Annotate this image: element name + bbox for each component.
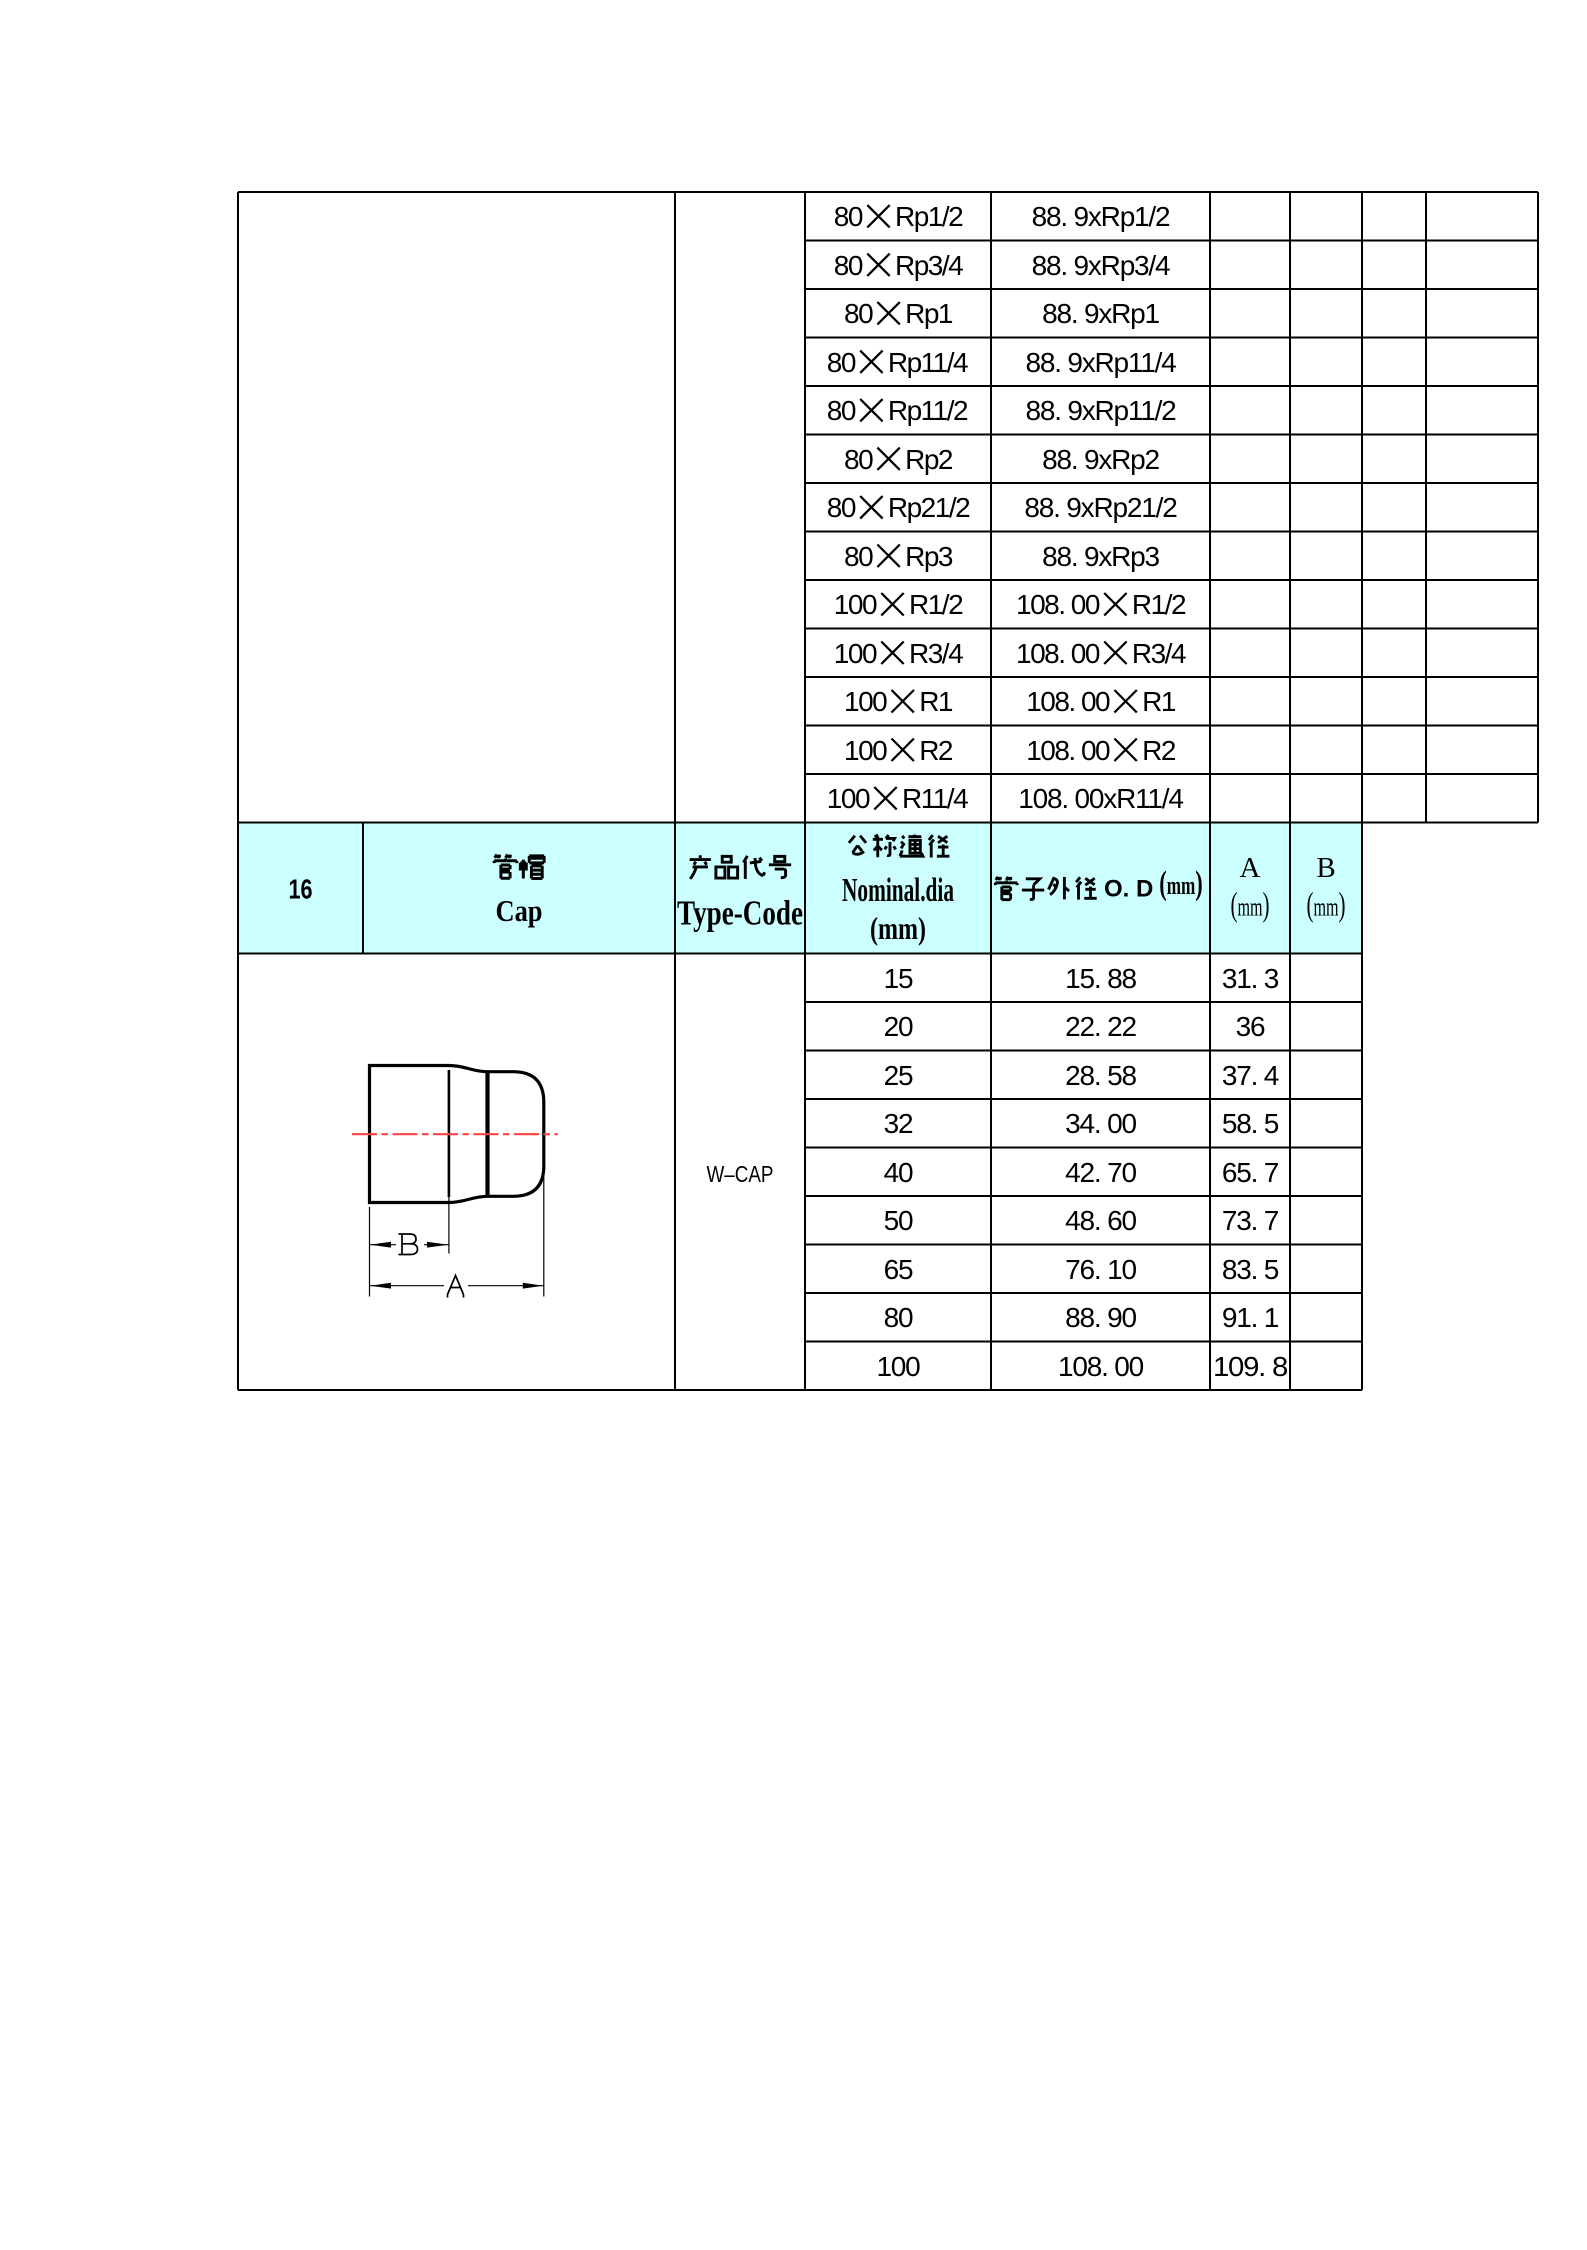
svg-text:100: 100 <box>834 638 877 669</box>
svg-text:91. 1: 91. 1 <box>1222 1302 1279 1333</box>
svg-text:80: 80 <box>844 444 873 475</box>
svg-text:15: 15 <box>884 963 913 994</box>
svg-text:31. 3: 31. 3 <box>1222 963 1279 994</box>
svg-text:(mm): (mm) <box>870 910 926 946</box>
svg-text:65: 65 <box>884 1254 913 1285</box>
svg-text:W–CAP: W–CAP <box>707 1161 774 1187</box>
svg-text:(mm): (mm) <box>1306 887 1345 924</box>
svg-text:R1/2: R1/2 <box>909 589 963 620</box>
svg-text:28. 58: 28. 58 <box>1065 1060 1136 1091</box>
svg-text:Type-Code: Type-Code <box>677 894 803 933</box>
svg-text:36: 36 <box>1236 1011 1265 1042</box>
svg-text:108. 00: 108. 00 <box>1026 686 1110 717</box>
svg-text:B: B <box>1316 852 1335 884</box>
svg-text:Rp3: Rp3 <box>905 541 953 572</box>
svg-text:80: 80 <box>834 201 863 232</box>
svg-text:(mm): (mm) <box>1230 887 1269 924</box>
svg-text:80: 80 <box>884 1302 913 1333</box>
svg-text:Rp1/2: Rp1/2 <box>895 201 963 232</box>
svg-text:50: 50 <box>884 1205 913 1236</box>
svg-text:R1/2: R1/2 <box>1132 589 1186 620</box>
svg-text:73. 7: 73. 7 <box>1222 1205 1279 1236</box>
svg-text:108. 00: 108. 00 <box>1016 589 1100 620</box>
svg-text:Rp3/4: Rp3/4 <box>895 250 963 281</box>
svg-text:R11/4: R11/4 <box>902 783 968 814</box>
svg-text:15. 88: 15. 88 <box>1065 963 1136 994</box>
svg-text:48. 60: 48. 60 <box>1065 1205 1136 1236</box>
svg-text:Rp11/4: Rp11/4 <box>888 347 968 378</box>
svg-text:80: 80 <box>827 492 856 523</box>
svg-text:88. 9xRp1: 88. 9xRp1 <box>1042 298 1159 329</box>
svg-text:Nominal.dia: Nominal.dia <box>842 872 954 909</box>
svg-text:108. 00: 108. 00 <box>1016 638 1100 669</box>
svg-text:R1: R1 <box>1142 686 1176 717</box>
svg-text:76. 10: 76. 10 <box>1065 1254 1136 1285</box>
svg-text:65. 7: 65. 7 <box>1222 1157 1279 1188</box>
svg-text:40: 40 <box>884 1157 913 1188</box>
svg-text:88. 9xRp3: 88. 9xRp3 <box>1042 541 1159 572</box>
svg-text:42. 70: 42. 70 <box>1065 1157 1136 1188</box>
svg-text:Rp11/2: Rp11/2 <box>888 395 968 426</box>
svg-text:A: A <box>1240 852 1261 884</box>
svg-text:100: 100 <box>844 735 887 766</box>
svg-text:O. D: O. D <box>1104 876 1153 903</box>
svg-text:100: 100 <box>827 783 870 814</box>
svg-text:108. 00xR11/4: 108. 00xR11/4 <box>1018 783 1183 814</box>
svg-text:108. 00: 108. 00 <box>1026 735 1110 766</box>
svg-text:80: 80 <box>844 298 873 329</box>
svg-text:R2: R2 <box>1142 735 1176 766</box>
svg-text:32: 32 <box>884 1108 913 1139</box>
svg-text:20: 20 <box>884 1011 913 1042</box>
svg-text:Rp1: Rp1 <box>905 298 953 329</box>
svg-text:Cap: Cap <box>496 893 543 928</box>
svg-text:Rp21/2: Rp21/2 <box>888 492 970 523</box>
svg-text:88. 9xRp1/2: 88. 9xRp1/2 <box>1032 201 1170 232</box>
svg-text:R3/4: R3/4 <box>1132 638 1186 669</box>
svg-text:16: 16 <box>289 874 313 905</box>
svg-text:109. 8: 109. 8 <box>1213 1351 1288 1382</box>
svg-text:88. 9xRp3/4: 88. 9xRp3/4 <box>1032 250 1170 281</box>
svg-text:80: 80 <box>844 541 873 572</box>
svg-text:R2: R2 <box>919 735 953 766</box>
svg-text:100: 100 <box>834 589 877 620</box>
svg-text:(mm): (mm) <box>1159 864 1203 902</box>
svg-text:88. 9xRp11/4: 88. 9xRp11/4 <box>1025 347 1176 378</box>
svg-text:R1: R1 <box>919 686 953 717</box>
svg-text:34. 00: 34. 00 <box>1065 1108 1136 1139</box>
svg-text:100: 100 <box>876 1351 920 1382</box>
svg-text:83. 5: 83. 5 <box>1222 1254 1279 1285</box>
svg-text:25: 25 <box>884 1060 913 1091</box>
svg-text:80: 80 <box>827 395 856 426</box>
svg-text:Rp2: Rp2 <box>905 444 953 475</box>
svg-text:37. 4: 37. 4 <box>1222 1060 1279 1091</box>
svg-text:58. 5: 58. 5 <box>1222 1108 1279 1139</box>
svg-text:88. 9xRp2: 88. 9xRp2 <box>1042 444 1159 475</box>
svg-text:100: 100 <box>844 686 887 717</box>
svg-text:88. 90: 88. 90 <box>1065 1302 1136 1333</box>
svg-text:80: 80 <box>827 347 856 378</box>
svg-text:88. 9xRp11/2: 88. 9xRp11/2 <box>1025 395 1176 426</box>
svg-text:88. 9xRp21/2: 88. 9xRp21/2 <box>1024 492 1177 523</box>
svg-text:22. 22: 22. 22 <box>1065 1011 1136 1042</box>
svg-text:108. 00: 108. 00 <box>1058 1351 1144 1382</box>
svg-text:80: 80 <box>834 250 863 281</box>
svg-text:R3/4: R3/4 <box>909 638 963 669</box>
